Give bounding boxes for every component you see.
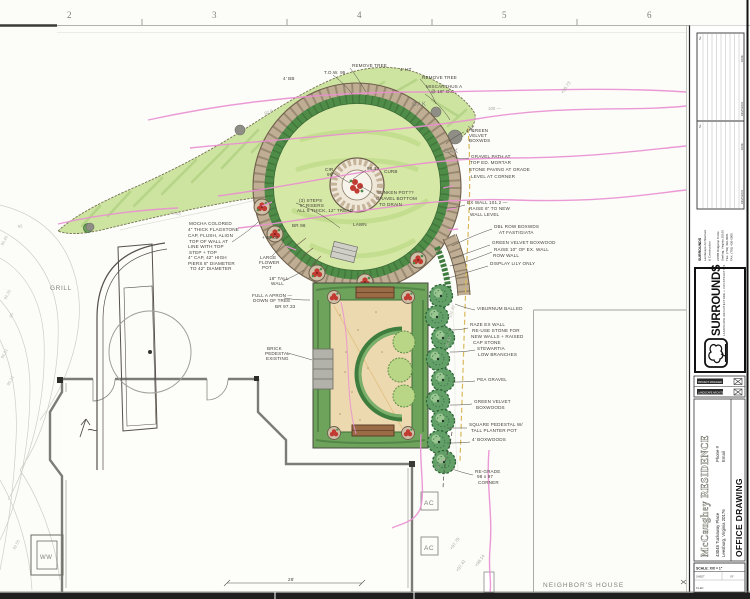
note: SUNKEN POT??: [377, 190, 414, 195]
conifer-tree: [432, 369, 455, 392]
note: NEW WALLS + RAISED: [471, 334, 524, 339]
revisions-date-header: DATE: [740, 55, 744, 62]
logo-tagline: LANDSCAPE ARCHITECTURE + CONSTRUCTION: [722, 264, 726, 336]
dimension-label: 26': [288, 577, 294, 582]
note: PEA GRAVEL: [477, 377, 507, 382]
note: DOWN OF TREE: [253, 298, 290, 303]
note: DBL ROW BOXWDS: [494, 224, 539, 229]
note: CORNER: [478, 480, 499, 485]
sheet-label: SHEET: [696, 575, 705, 579]
note: 98 x 97: [477, 474, 493, 479]
revisions-no-header: No.: [698, 124, 702, 128]
note: BOXWDS: [469, 138, 490, 143]
scale-value: SCALE: X/X = 1": [696, 567, 723, 571]
planter-pot: [410, 252, 426, 268]
note: ROW WALL: [493, 253, 519, 258]
conifer-tree: [432, 410, 455, 433]
firm-tel: TEL: (703) 430-6001: [725, 233, 729, 261]
drawing-title: OFFICE DRAWING: [734, 478, 744, 557]
note: VIBURNUM BALLED: [477, 306, 523, 311]
note: RAZE EX WALL: [470, 322, 505, 327]
note: CAP, FLUSH, ALIGN: [188, 233, 233, 238]
ruler-mark: 3: [212, 10, 217, 20]
ruler-mark: 2: [67, 10, 72, 20]
conifer-tree: [430, 285, 453, 308]
note: LEVEL AT CORNER: [471, 174, 516, 179]
note: T.O.W. 95: [324, 70, 346, 75]
note: GREEN VELVET: [474, 399, 511, 404]
title-block: DATE REVISIONS DATE REVISIONS No. No. SU…: [687, 0, 749, 599]
firm-fax: FAX: (703) 430-6005: [730, 233, 734, 261]
note: AT FASTIGIATA: [499, 230, 534, 235]
note: GRAVEL BOTTOM: [376, 196, 417, 201]
column-marker: [57, 377, 63, 383]
planter-pot: [254, 199, 270, 215]
firm-info: SURROUNDS Landscape Architecture & Const…: [698, 229, 734, 261]
column-marker: [254, 376, 259, 381]
note: TO 42" DIAMETER: [190, 266, 232, 271]
window-well-label: WW: [40, 555, 53, 561]
shrub: [393, 331, 415, 353]
note: RAISE 6" TO NEW: [469, 206, 510, 211]
note: EX WALL 101.2 —: [467, 200, 508, 205]
note: STONE PAVING AT GRADE: [469, 167, 530, 172]
ac-label: AC: [424, 500, 434, 507]
project-name: McCaughey RESIDENCE: [700, 435, 711, 557]
surrounds-logo: SURROUNDS LANDSCAPE ARCHITECTURE + CONST…: [695, 264, 745, 372]
project-email: Email: [721, 451, 726, 462]
note: 96: [327, 172, 333, 177]
logo-wordmark: SURROUNDS: [711, 264, 723, 336]
note: LINE WITH TOP: [188, 244, 224, 249]
firm-line: Landscape Architecture: [703, 229, 707, 261]
project-phone: Phone #: [715, 445, 720, 462]
note: BOXWOODS: [476, 405, 505, 410]
note: @ 18" O.C.: [431, 89, 456, 94]
note: MOCHA COLORED: [189, 221, 232, 226]
grill-label: GRILL: [50, 285, 72, 292]
corner-pot: [402, 427, 415, 440]
note: 4" THICK FLAGSTONE: [188, 227, 239, 232]
note: WALL LEVEL: [470, 212, 500, 217]
firm-address: 21585 Ridgetop Circle: [716, 231, 720, 261]
note: LAWN: [353, 222, 367, 227]
note: TALL PLANTER POT: [471, 428, 517, 433]
conifer-tree: [428, 431, 451, 454]
note: RE-USE STONE FOR: [472, 328, 520, 333]
corner-pot: [328, 427, 341, 440]
note: TOP ED. MORTAR: [470, 160, 512, 165]
neighbors-house-label: NEIGHBOR'S HOUSE: [543, 582, 624, 589]
office-drawing-canvas: 2 3 4 5 6: [0, 0, 750, 599]
planter-pot: [309, 265, 325, 281]
note: CURB: [384, 169, 398, 174]
note: WALL: [271, 281, 284, 286]
note: SQUARE PEDESTAL W/: [469, 422, 523, 427]
revisions-no-header: No.: [698, 36, 702, 40]
patio-garden: [313, 283, 428, 448]
note: DISPLAY LILY ONLY: [490, 261, 535, 266]
column-marker: [409, 461, 415, 467]
note: POT: [262, 265, 272, 270]
note: BR 97.33: [275, 304, 296, 309]
oak-label: OAK: [412, 102, 426, 108]
note: BR 98: [292, 223, 306, 228]
note: 4' BB: [283, 76, 295, 81]
ac-label: AC: [424, 545, 434, 552]
note: + 98.02: [262, 235, 279, 240]
of-label: OF: [730, 575, 734, 579]
ruler-mark: 4: [357, 10, 362, 20]
existing-tree: [86, 223, 94, 231]
project-address: Leesburg, Virginia 20176: [721, 509, 726, 557]
circular-garden: [253, 83, 461, 291]
conifer-tree: [427, 348, 450, 371]
firm-line: & Construction: [708, 241, 712, 261]
note: CAP STONE: [473, 340, 501, 345]
note: EXISTING: [266, 356, 289, 361]
note: REMOVE TREE: [352, 63, 387, 68]
note: 4" CAP, 42" HIGH: [188, 255, 227, 260]
patio-steps: [313, 349, 333, 389]
note: TO DRAIN: [379, 202, 402, 207]
spot-elevation: 100 —: [488, 106, 502, 111]
corner-pot: [402, 291, 415, 304]
note: 96.13: [367, 166, 380, 171]
firm-name: SURROUNDS: [698, 237, 702, 261]
revisions-date-header: DATE: [740, 143, 744, 150]
revisions-header: REVISIONS: [740, 190, 744, 204]
conifer-tree: [426, 306, 449, 329]
ruler-mark: 5: [502, 10, 507, 20]
note: REMOVE TREE: [422, 75, 457, 80]
landscape-architect-label: LANDSCAPE ARCHITECT: [698, 391, 727, 394]
note: STEWARTIA: [477, 346, 506, 351]
note: ALL 5 THICK, 12" TREAD: [297, 208, 354, 213]
bottom-border: [0, 592, 750, 599]
shrub: [393, 385, 415, 407]
note: 4' HT: [400, 67, 412, 72]
project-address: 43048 Tuckaway Place: [715, 512, 720, 557]
note: LOW BRANCHES: [478, 352, 517, 357]
project-manager-label: PROJECT MANAGER: [698, 381, 722, 384]
ruler-mark: 6: [647, 10, 652, 20]
firm-address: Sterling, Virginia 20166: [721, 230, 725, 261]
corner-pot: [328, 291, 341, 304]
door-stoop: [484, 572, 494, 592]
drawing-sheet: 2 3 4 5 6: [0, 0, 750, 599]
shrub: [388, 358, 412, 382]
revisions-header: REVISIONS: [740, 102, 744, 116]
conifer-tree: [427, 390, 450, 413]
note: RAISE 10" OF EX. WALL: [494, 247, 549, 252]
note: GRAVEL PATH AT: [471, 154, 511, 159]
filed-label: FILED: [696, 586, 703, 590]
note: GREEN VELVET BOXWOOD: [492, 240, 556, 245]
note: 4' BOXWOODS: [472, 437, 506, 442]
existing-tree: [235, 125, 245, 135]
oak-label: OAK: [444, 149, 458, 155]
